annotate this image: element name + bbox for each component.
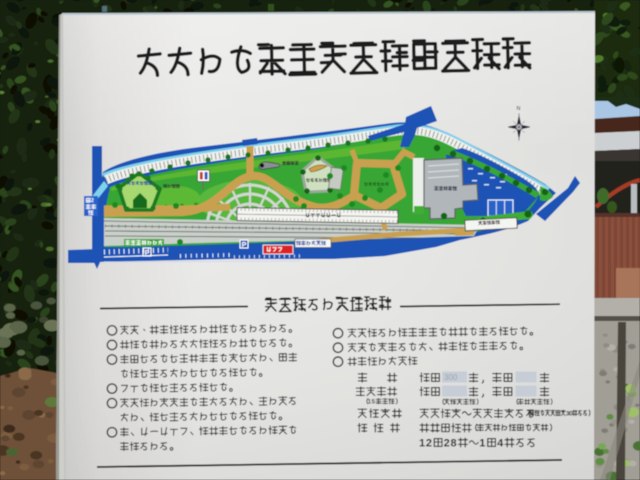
svg-text:4: 4 — [497, 437, 504, 449]
svg-text:5: 5 — [371, 399, 375, 406]
svg-text:2: 2 — [444, 437, 450, 449]
svg-text:N: N — [517, 106, 521, 112]
svg-text:2: 2 — [91, 198, 94, 204]
svg-text:1: 1 — [419, 437, 425, 449]
svg-text:300: 300 — [444, 373, 458, 382]
svg-text:2: 2 — [426, 437, 432, 449]
svg-text:P: P — [242, 240, 247, 249]
svg-text:0: 0 — [569, 410, 573, 417]
svg-text:8: 8 — [450, 437, 456, 449]
svg-text:1: 1 — [479, 437, 485, 449]
